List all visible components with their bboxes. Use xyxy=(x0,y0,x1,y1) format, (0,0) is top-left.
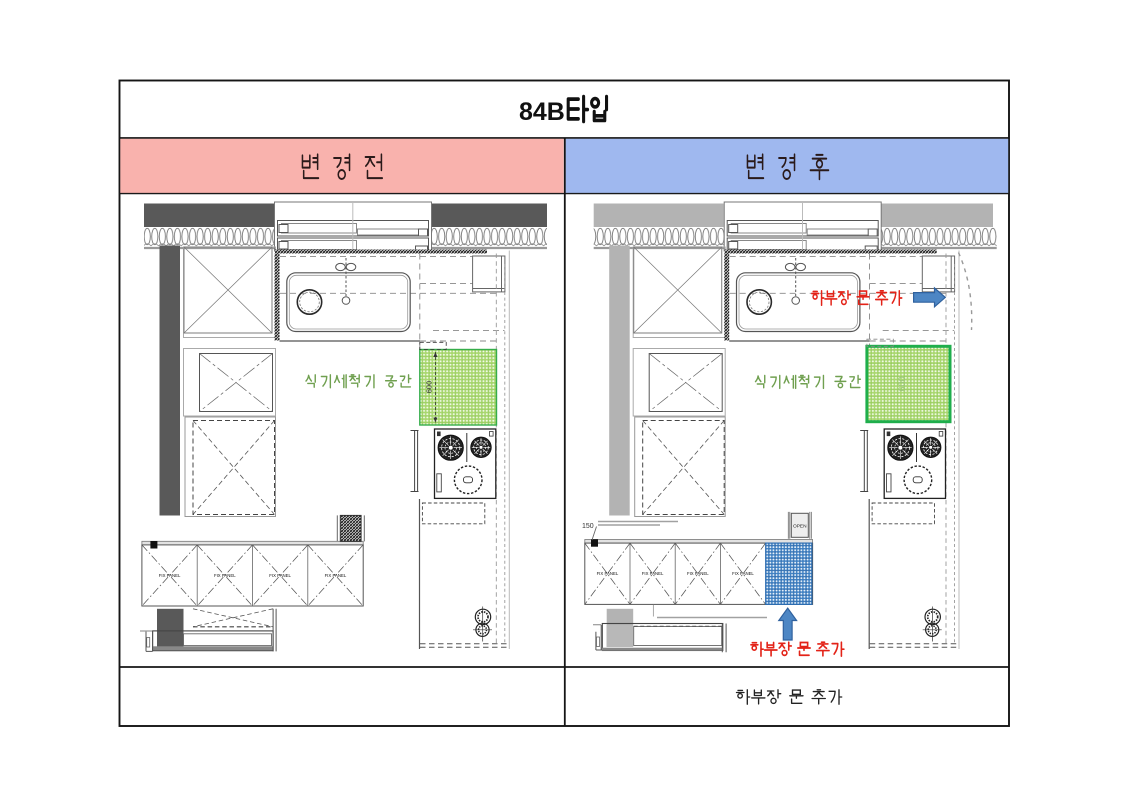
svg-text:FIX PANEL: FIX PANEL xyxy=(269,573,291,578)
svg-text:600: 600 xyxy=(897,376,907,391)
svg-text:FIX PANEL: FIX PANEL xyxy=(159,573,181,578)
svg-text:84B: 84B xyxy=(519,98,565,126)
svg-text:150: 150 xyxy=(582,523,594,530)
svg-text:FIX PANEL: FIX PANEL xyxy=(214,573,236,578)
svg-text:OPEN: OPEN xyxy=(793,524,807,530)
svg-text:FIX PANEL: FIX PANEL xyxy=(687,571,709,576)
svg-text:600: 600 xyxy=(425,381,434,394)
svg-text:FIX PANEL: FIX PANEL xyxy=(597,571,619,576)
svg-text:FIX PANEL: FIX PANEL xyxy=(642,571,664,576)
svg-text:FIX PANEL: FIX PANEL xyxy=(732,571,754,576)
svg-text:FIX PANEL: FIX PANEL xyxy=(325,573,347,578)
